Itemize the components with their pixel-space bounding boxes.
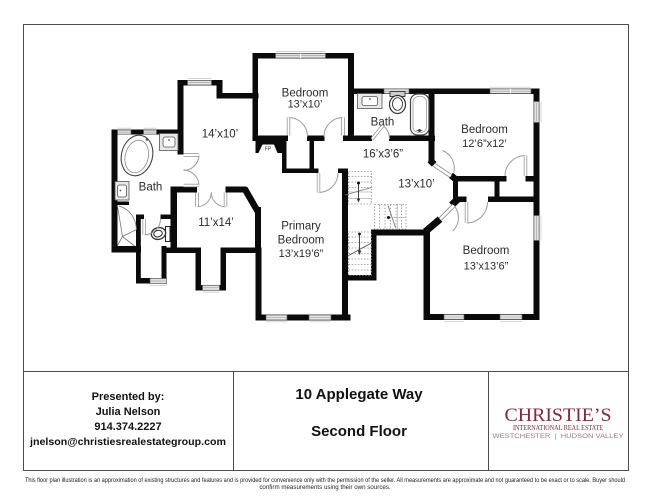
svg-text:Primary: Primary	[281, 221, 321, 233]
svg-text:11’x14’: 11’x14’	[198, 217, 234, 229]
svg-text:Julia Nelson: Julia Nelson	[96, 406, 161, 418]
svg-text:13’x10’: 13’x10’	[288, 99, 323, 111]
svg-text:WESTCHESTER | HUDSON VALLEY: WESTCHESTER | HUDSON VALLEY	[493, 434, 624, 440]
svg-text:914.374.2227: 914.374.2227	[94, 421, 161, 433]
svg-text:16’x3’6”: 16’x3’6”	[363, 149, 403, 161]
svg-text:INTERNATIONAL REAL ESTATE: INTERNATIONAL REAL ESTATE	[513, 424, 603, 432]
svg-text:Presented by:: Presented by:	[92, 391, 165, 403]
svg-text:Second Floor: Second Floor	[311, 423, 407, 440]
svg-text:12’6”x12’: 12’6”x12’	[462, 138, 507, 150]
svg-text:Bedroom: Bedroom	[463, 245, 510, 257]
svg-text:FP: FP	[265, 147, 272, 153]
svg-text:13’x13’6”: 13’x13’6”	[464, 261, 509, 273]
svg-text:confirm measurements using the: confirm measurements using their own sou…	[259, 484, 391, 491]
svg-text:14’x10’: 14’x10’	[202, 129, 238, 141]
svg-text:Bedroom: Bedroom	[461, 124, 508, 136]
svg-text:13’x19’6”: 13’x19’6”	[279, 248, 324, 260]
svg-text:10 Applegate Way: 10 Applegate Way	[295, 386, 423, 403]
svg-text:Bath: Bath	[139, 182, 163, 194]
svg-text:Bath: Bath	[371, 117, 395, 129]
svg-text:13’x10’: 13’x10’	[398, 179, 434, 191]
svg-text:jnelson@christiesrealestategro: jnelson@christiesrealestategroup.com	[29, 436, 226, 448]
svg-text:Bedroom: Bedroom	[278, 235, 325, 247]
svg-text:This floor plan illustration i: This floor plan illustration is an appro…	[25, 477, 625, 484]
svg-text:CHRISTIE’S: CHRISTIE’S	[505, 405, 612, 426]
